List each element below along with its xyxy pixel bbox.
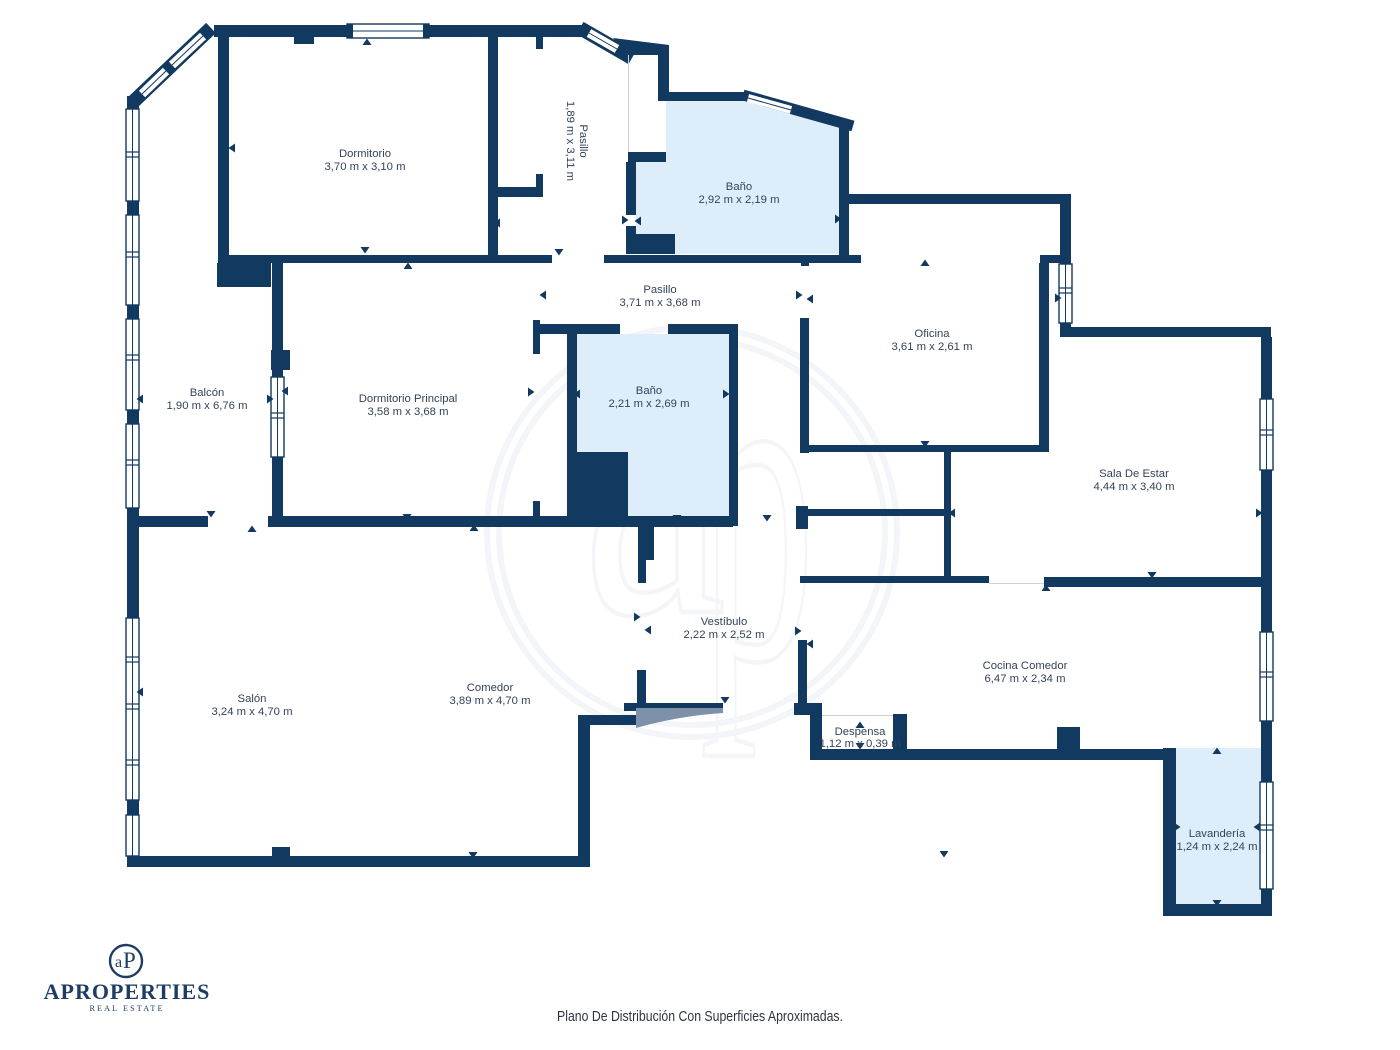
svg-text:a: a: [115, 954, 122, 971]
svg-text:APROPERTIES: APROPERTIES: [44, 979, 211, 1004]
svg-text:Despensa: Despensa: [835, 726, 887, 738]
svg-text:2,21 m x 2,69 m: 2,21 m x 2,69 m: [609, 398, 690, 410]
svg-text:1,12 m x 0,39 m: 1,12 m x 0,39 m: [820, 738, 901, 750]
svg-text:3,24 m x 4,70 m: 3,24 m x 4,70 m: [212, 706, 293, 718]
svg-text:Oficina: Oficina: [914, 328, 950, 340]
svg-text:1,90 m x 6,76 m: 1,90 m x 6,76 m: [167, 400, 248, 412]
svg-text:Pasillo: Pasillo: [577, 124, 589, 157]
svg-text:Vestíbulo: Vestíbulo: [701, 616, 747, 628]
svg-text:3,71 m x 3,68 m: 3,71 m x 3,68 m: [620, 297, 701, 309]
svg-text:1,89 m x 3,11 m: 1,89 m x 3,11 m: [564, 101, 576, 181]
svg-text:2,22 m x 2,52 m: 2,22 m x 2,52 m: [684, 629, 765, 641]
svg-text:Sala De Estar: Sala De Estar: [1099, 468, 1169, 480]
svg-text:P: P: [123, 948, 136, 973]
svg-text:6,47 m x 2,34 m: 6,47 m x 2,34 m: [985, 673, 1066, 685]
svg-text:Dormitorio: Dormitorio: [339, 148, 391, 160]
svg-text:3,58 m x 3,68 m: 3,58 m x 3,68 m: [368, 406, 449, 418]
svg-text:Cocina Comedor: Cocina Comedor: [983, 660, 1068, 672]
svg-text:2,92 m x 2,19 m: 2,92 m x 2,19 m: [699, 194, 780, 206]
svg-text:Pasillo: Pasillo: [643, 284, 676, 296]
svg-text:Baño: Baño: [636, 385, 662, 397]
svg-text:Balcón: Balcón: [190, 387, 225, 399]
svg-text:3,89 m x 4,70 m: 3,89 m x 4,70 m: [450, 695, 531, 707]
svg-text:3,70 m x 3,10 m: 3,70 m x 3,10 m: [325, 161, 406, 173]
svg-text:4,44 m x 3,40 m: 4,44 m x 3,40 m: [1094, 481, 1175, 493]
svg-text:Salón: Salón: [238, 693, 267, 705]
svg-text:REAL ESTATE: REAL ESTATE: [89, 1004, 164, 1013]
svg-text:Baño: Baño: [726, 181, 752, 193]
svg-text:Lavandería: Lavandería: [1189, 828, 1246, 840]
svg-text:1,24 m x 2,24 m: 1,24 m x 2,24 m: [1177, 841, 1258, 853]
svg-text:Plano De Distribución Con Supe: Plano De Distribución Con Superficies Ap…: [557, 1008, 843, 1024]
svg-text:Dormitorio Principal: Dormitorio Principal: [359, 393, 458, 405]
svg-text:Comedor: Comedor: [467, 682, 514, 694]
svg-text:3,61 m x 2,61 m: 3,61 m x 2,61 m: [892, 341, 973, 353]
